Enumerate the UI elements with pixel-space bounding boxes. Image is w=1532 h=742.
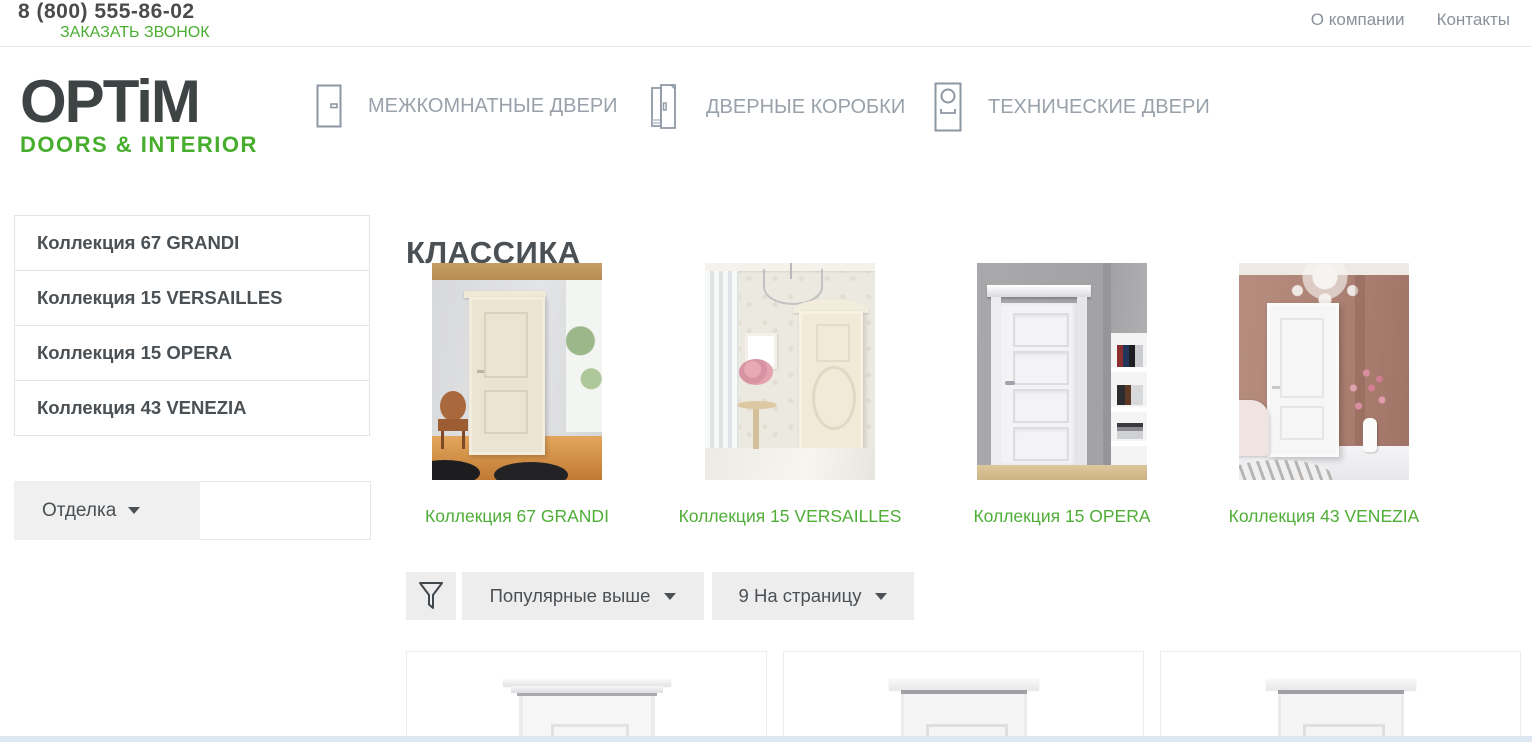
product-card[interactable] [1160,651,1521,742]
collection-link-versailles[interactable]: Коллекция 15 VERSAILLES [650,506,930,527]
collection-link-opera[interactable]: Коллекция 15 OPERA [922,506,1202,527]
nav-item-technical-doors[interactable]: ТЕХНИЧЕСКИЕ ДВЕРИ [934,82,1210,132]
door-photo-venezia [1239,263,1409,480]
collection-link-grandi[interactable]: Коллекция 67 GRANDI [377,506,657,527]
sidebar-item-label: Коллекция 15 VERSAILLES [37,287,283,309]
collection-link-venezia[interactable]: Коллекция 43 VENEZIA [1184,506,1464,527]
nav-label: МЕЖКОМНАТНЫЕ ДВЕРИ [368,95,618,118]
finish-filter-label: Отделка [42,500,116,522]
door-closed-icon [316,84,342,128]
sidebar-item-label: Коллекция 15 OPERA [37,342,232,364]
product-door-image [503,678,671,742]
callback-link[interactable]: ЗАКАЗАТЬ ЗВОНОК [60,24,210,42]
product-card[interactable] [783,651,1144,742]
nav-label: ТЕХНИЧЕСКИЕ ДВЕРИ [988,96,1210,119]
logo-subtitle: DOORS & INTERIOR [20,132,258,158]
sidebar-item-grandi[interactable]: Коллекция 67 GRANDI [14,215,370,271]
sidebar-item-opera[interactable]: Коллекция 15 OPERA [14,325,370,381]
horizontal-scrollbar[interactable] [0,736,1532,742]
per-page-dropdown-value: 9 На страницу [739,585,862,607]
door-photo-versailles [705,263,875,480]
logo[interactable]: OPTiM DOORS & INTERIOR [20,74,258,158]
nav-item-interior-doors[interactable]: МЕЖКОМНАТНЫЕ ДВЕРИ [316,84,618,128]
nav-item-door-frames[interactable]: ДВЕРНЫЕ КОРОБКИ [648,82,905,132]
finish-filter-value-area[interactable] [200,481,371,540]
per-page-dropdown[interactable]: 9 На страницу [712,572,914,620]
chevron-down-icon [664,593,676,600]
collection-image-opera[interactable] [977,263,1147,480]
chevron-down-icon [128,507,140,514]
door-photo-opera [977,263,1147,480]
collection-image-grandi[interactable] [432,263,602,480]
product-door-image [889,678,1039,742]
top-link-contacts[interactable]: Контакты [1437,10,1510,30]
sidebar-item-versailles[interactable]: Коллекция 15 VERSAILLES [14,270,370,326]
page: 8 (800) 555-86-02 ЗАКАЗАТЬ ЗВОНОК О комп… [0,0,1532,742]
funnel-icon [417,580,445,612]
topbar-divider [0,46,1532,47]
product-card[interactable] [406,651,767,742]
sidebar-item-label: Коллекция 43 VENEZIA [37,397,247,419]
sidebar-item-venezia[interactable]: Коллекция 43 VENEZIA [14,380,370,436]
nav-label: ДВЕРНЫЕ КОРОБКИ [706,96,905,119]
door-open-icon [648,82,680,132]
collection-image-versailles[interactable] [705,263,875,480]
sidebar-item-label: Коллекция 67 GRANDI [37,232,239,254]
door-photo-grandi [432,263,602,480]
door-technical-icon [934,82,962,132]
sort-dropdown[interactable]: Популярные выше [462,572,704,620]
logo-title: OPTiM [20,74,258,130]
phone-number: 8 (800) 555-86-02 [18,0,195,24]
collection-image-venezia[interactable] [1239,263,1409,480]
finish-filter-toggle[interactable]: Отделка [14,481,200,540]
top-link-about[interactable]: О компании [1311,10,1405,30]
product-door-image [1266,678,1416,742]
sidebar-collections-menu: Коллекция 67 GRANDI Коллекция 15 VERSAIL… [14,215,370,436]
finish-filter: Отделка [14,481,371,540]
sort-dropdown-value: Популярные выше [490,585,651,607]
top-links: О компании Контакты [1311,10,1510,30]
chevron-down-icon [875,593,887,600]
filter-button[interactable] [406,572,456,620]
